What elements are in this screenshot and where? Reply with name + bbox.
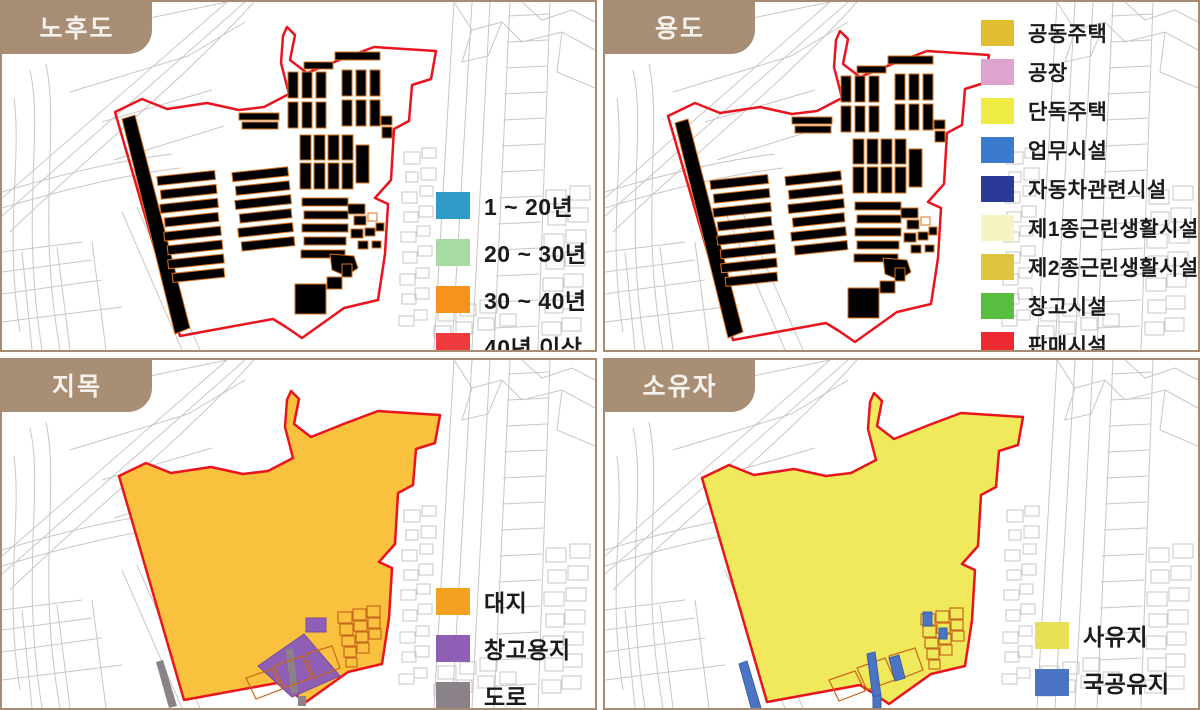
legend-owner: 사유지국공유지 <box>1035 618 1170 699</box>
color-swatch <box>436 333 470 353</box>
panel-title: 소유자 <box>642 373 717 401</box>
panel-use: 용도 공동주택공장단독주택업무시설자동차관련시설제1종근린생활시설제2종근린생활… <box>603 0 1200 352</box>
legend-item-jimok-2: 도로 <box>436 678 571 710</box>
legend-item-use-8: 판매시설 <box>981 330 1199 352</box>
color-swatch <box>436 682 470 709</box>
color-swatch <box>981 59 1014 85</box>
legend-item-use-1: 공장 <box>981 57 1199 87</box>
panel-tab-owner: 소유자 <box>605 360 755 412</box>
legend-label: 30 ~ 40년 <box>484 282 587 316</box>
legend-label: 판매시설 <box>1028 330 1107 352</box>
legend-label: 제1종근린생활시설 <box>1028 213 1199 243</box>
legend-label: 1 ~ 20년 <box>484 188 573 222</box>
legend-label: 도로 <box>484 678 527 710</box>
color-swatch <box>436 239 470 266</box>
panel-tab-jimok: 지목 <box>2 360 152 412</box>
legend-aging: 1 ~ 20년20 ~ 30년30 ~ 40년40년 이상 <box>436 188 587 352</box>
panel-title: 지목 <box>52 373 102 401</box>
color-swatch <box>981 293 1014 319</box>
district-use <box>668 31 989 342</box>
legend-label: 단독주택 <box>1028 96 1107 126</box>
legend-item-use-0: 공동주택 <box>981 18 1199 48</box>
legend-item-use-3: 업무시설 <box>981 135 1199 165</box>
legend-item-aging-3: 40년 이상 <box>436 329 587 352</box>
color-swatch <box>436 588 470 615</box>
legend-label: 대지 <box>484 584 527 618</box>
panel-tab-aging: 노후도 <box>2 2 152 54</box>
panel-aging: 노후도 1 ~ 20년20 ~ 30년30 ~ 40년40년 이상 <box>0 0 597 352</box>
legend-item-use-5: 제1종근린생활시설 <box>981 213 1199 243</box>
panel-jimok: 지목 대지창고용지도로 <box>0 358 597 710</box>
legend-label: 공동주택 <box>1028 18 1107 48</box>
legend-item-owner-0: 사유지 <box>1035 618 1170 652</box>
district-owner <box>702 393 1023 708</box>
color-swatch <box>436 635 470 662</box>
legend-item-owner-1: 국공유지 <box>1035 665 1170 699</box>
legend-item-aging-2: 30 ~ 40년 <box>436 282 587 316</box>
legend-label: 국공유지 <box>1083 665 1170 699</box>
legend-label: 자동차관련시설 <box>1028 174 1167 204</box>
panel-title: 용도 <box>655 15 705 43</box>
legend-item-aging-1: 20 ~ 30년 <box>436 235 587 269</box>
map-figure-grid: 노후도 1 ~ 20년20 ~ 30년30 ~ 40년40년 이상 용도 공동주… <box>0 0 1200 710</box>
color-swatch <box>981 254 1014 280</box>
legend-label: 사유지 <box>1083 618 1148 652</box>
panel-owner: 소유자 사유지국공유지 <box>603 358 1200 710</box>
legend-label: 업무시설 <box>1028 135 1107 165</box>
legend-label: 공장 <box>1028 57 1068 87</box>
legend-jimok: 대지창고용지도로 <box>436 584 571 710</box>
legend-item-aging-0: 1 ~ 20년 <box>436 188 587 222</box>
color-swatch <box>981 98 1014 124</box>
color-swatch <box>1035 669 1069 696</box>
legend-item-use-4: 자동차관련시설 <box>981 174 1199 204</box>
legend-item-jimok-1: 창고용지 <box>436 631 571 665</box>
panel-tab-use: 용도 <box>605 2 755 54</box>
legend-label: 20 ~ 30년 <box>484 235 587 269</box>
color-swatch <box>981 215 1014 241</box>
color-swatch <box>436 286 470 313</box>
panel-title: 노후도 <box>39 15 114 43</box>
legend-item-use-6: 제2종근린생활시설 <box>981 252 1199 282</box>
legend-item-use-2: 단독주택 <box>981 96 1199 126</box>
legend-label: 40년 이상 <box>484 329 582 352</box>
legend-label: 창고용지 <box>484 631 571 665</box>
color-swatch <box>981 20 1014 46</box>
color-swatch <box>436 192 470 219</box>
color-swatch <box>1035 622 1069 649</box>
color-swatch <box>981 137 1014 163</box>
district-jimok <box>119 391 440 708</box>
legend-use: 공동주택공장단독주택업무시설자동차관련시설제1종근린생활시설제2종근린생활시설창… <box>981 18 1199 352</box>
legend-label: 창고시설 <box>1028 291 1107 321</box>
color-swatch <box>981 176 1014 202</box>
legend-label: 제2종근린생활시설 <box>1028 252 1199 282</box>
legend-item-jimok-0: 대지 <box>436 584 571 618</box>
legend-item-use-7: 창고시설 <box>981 291 1199 321</box>
color-swatch <box>981 332 1014 352</box>
